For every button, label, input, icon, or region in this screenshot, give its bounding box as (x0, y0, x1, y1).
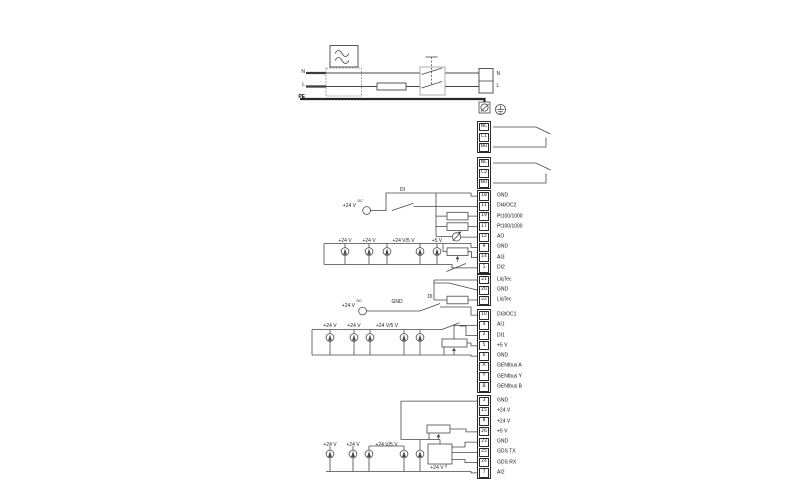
terminal-number: 2 (479, 331, 489, 340)
liqtec-circuit (434, 280, 477, 304)
di3-24v-label: +24 V (329, 304, 355, 310)
terminal-label: Pt100/1000 (497, 214, 523, 219)
mains-terminal-block (479, 69, 493, 94)
terminal-number: NC (479, 159, 489, 168)
terminal-label: +24 V (497, 409, 510, 414)
potentiometer-icon (442, 339, 467, 347)
terminal-row: AGENIbus A (478, 361, 490, 371)
terminal-label: GENIbus A (497, 364, 522, 369)
terminal-number: 15 (479, 407, 489, 416)
supply-terminal-icon (359, 307, 367, 315)
liqtec-sensor-icon (447, 296, 468, 304)
terminal-number: 5 (479, 341, 489, 350)
terminal-number: 20 (479, 286, 489, 295)
terminal-label: DI1 (497, 333, 505, 338)
potentiometer-icon (427, 425, 450, 433)
terminal-row: 9GND (478, 242, 490, 252)
terminal-label: +5 V (497, 429, 507, 434)
supply-terminal-icon (363, 207, 371, 215)
terminal-number: 7 (479, 468, 489, 477)
wiring-diagram: N L PE N L +24 V DC DI +24 V +24 V +24 V… (0, 0, 800, 492)
ai1-24v5v-label: +24 V/5 V (375, 324, 399, 330)
terminal-row: 24GDS RX (478, 458, 490, 468)
terminal-row: 7AI2 (478, 468, 490, 478)
terminal-row: 26+5 V (478, 427, 490, 437)
terminal-row: 14AI3 (478, 253, 490, 263)
terminal-row: 3GND (478, 396, 490, 406)
terminal-row: 2DI1 (478, 331, 490, 341)
terminal-row: 5+5 V (478, 341, 490, 351)
di4-24v-label: +24 V (330, 204, 356, 210)
terminal-number: 10 (479, 311, 489, 320)
di4-pt100-ao-circuit (363, 193, 477, 241)
terminal-row: 10DI3/OC1 (478, 310, 490, 320)
terminal-number: NC (479, 123, 489, 132)
di4-dc-label: DC (358, 199, 363, 203)
di3-di-label: DI (423, 295, 437, 301)
sensor-source-icons (341, 248, 441, 256)
terminal-label: +24 V (497, 419, 510, 424)
terminal-group-liqtec: 21LiqTec20GND22LiqTec (477, 274, 491, 306)
terminal-label: Pt100/1000 (497, 224, 523, 229)
di3-gnd-label: GND (387, 300, 407, 306)
terminal-number: 4 (479, 321, 489, 330)
terminal-label: DI2 (497, 265, 505, 270)
ai2-gds-circuit (326, 401, 477, 473)
ai3-24v-label-2: +24 V (356, 239, 382, 245)
relay-contact-1 (493, 127, 551, 147)
terminal-number: 26 (479, 427, 489, 436)
terminal-row: 11DI4/OC2 (478, 201, 490, 211)
terminal-label: GND (497, 399, 508, 404)
mains-wiring (300, 46, 506, 115)
pt100-sensor-icon (447, 223, 468, 231)
terminal-number: 8 (479, 417, 489, 426)
di4-di-label: DI (400, 188, 405, 194)
pe-wire (300, 99, 485, 102)
terminal-number: C1 (479, 133, 489, 142)
terminal-label: GENIbus Y (497, 374, 522, 379)
terminal-number: NO (479, 179, 489, 188)
screw-terminal-icon (479, 102, 490, 113)
ai3-24v5v-label: +24 V/5 V (392, 239, 415, 245)
terminal-number: 19 (479, 212, 489, 221)
earth-ground-icon (496, 105, 506, 115)
terminal-row: NO (478, 142, 490, 152)
terminal-label: DI4/OC2 (497, 204, 516, 209)
di3-circuit (359, 304, 477, 316)
terminal-group-io-mid: 10DI3/OC14AI12DI15+5 V6GNDAGENIbus AYGEN… (477, 309, 491, 393)
sensor-source-icons (326, 450, 424, 458)
ai1-24v-label-2: +24 V (341, 324, 367, 330)
ai1-24v-label-1: +24 V (317, 324, 343, 330)
ai2-24v5v-label: +24 V/5 V (375, 443, 399, 449)
terminal-label: GND (497, 354, 508, 359)
terminal-number: 6 (479, 352, 489, 361)
mains-pe-label: PE (292, 95, 305, 101)
ai3-24v-label-1: +24 V (332, 239, 358, 245)
terminal-group-io-lower: 3GND15+24 V8+24 V26+5 V23GND25GDS TX24GD… (477, 395, 491, 479)
terminal-number: NO (479, 143, 489, 152)
ai3-di2-circuit (324, 244, 477, 272)
terminal-row: 4AI1 (478, 320, 490, 330)
ai2-24v-label-2: +24 V (340, 443, 366, 449)
terminal-label: GND (497, 288, 508, 293)
di3-switch-icon (420, 304, 440, 312)
terminal-label: AI1 (497, 323, 505, 328)
terminal-row: 17Pt100/1000 (478, 222, 490, 232)
terminal-row: BGENIbus B (478, 382, 490, 392)
wiper-arrow-icon (456, 256, 460, 259)
terminal-row: NC (478, 122, 490, 132)
terminal-label: GDS RX (497, 460, 516, 465)
mains-n-label: N (294, 70, 305, 76)
terminal-group-relay-2: NCC2NO (477, 157, 491, 189)
terminal-number: 22 (479, 296, 489, 305)
di1-switch-icon (442, 323, 460, 330)
mains-l-label: L (294, 83, 305, 89)
outlet-n-label: N (497, 72, 501, 78)
pt100-sensor-icon (447, 212, 468, 220)
terminal-label: GND (497, 245, 508, 250)
sensor-source-icons (326, 334, 424, 342)
terminal-number: Y (479, 372, 489, 381)
terminal-number: 24 (479, 458, 489, 467)
terminal-row: YGENIbus Y (478, 372, 490, 382)
sine-filter-icon (330, 46, 358, 68)
terminal-number: 12 (479, 233, 489, 242)
terminal-number: 21 (479, 276, 489, 285)
terminal-row: 22LiqTec (478, 295, 490, 305)
ai3-5v-label: +5 V (428, 239, 446, 245)
terminal-group-io-upper: 18GND11DI4/OC219Pt100/100017Pt100/100012… (477, 190, 491, 274)
terminal-number: 18 (479, 192, 489, 201)
outlet-l-label: L (497, 84, 500, 90)
terminal-label: AO (497, 235, 504, 240)
terminal-label: LiqTec (497, 298, 511, 303)
terminal-row: 18GND (478, 191, 490, 201)
terminal-row: 20GND (478, 285, 490, 295)
terminal-row: 8+24 V (478, 417, 490, 427)
terminal-group-relay-1: NCC1NO (477, 121, 491, 153)
terminal-label: AI3 (497, 255, 505, 260)
gds-sensor-icon (428, 444, 452, 464)
terminal-number: 25 (479, 448, 489, 457)
terminal-label: GND (497, 194, 508, 199)
ao-transducer-icon (452, 232, 462, 241)
terminal-number: 9 (479, 243, 489, 252)
terminal-label: DI3/OC1 (497, 313, 516, 318)
terminal-row: 15+24 V (478, 406, 490, 416)
terminal-row: NC (478, 158, 490, 168)
wiper-arrow-icon (437, 434, 441, 438)
terminal-label: GDS TX (497, 450, 516, 455)
supply-unit-box (326, 68, 362, 96)
relay-contact-2 (493, 163, 551, 183)
terminal-row: 19Pt100/1000 (478, 212, 490, 222)
terminal-label: +5 V (497, 343, 507, 348)
terminal-row: 12AO (478, 232, 490, 242)
terminal-row: 21LiqTec (478, 275, 490, 285)
terminal-number: 1 (479, 263, 489, 272)
terminal-number: B (479, 382, 489, 391)
mains-nl-stubs (306, 73, 326, 87)
terminal-number: 3 (479, 397, 489, 406)
terminal-row: C1 (478, 132, 490, 142)
di4-switch-icon (392, 203, 414, 210)
terminal-number: 11 (479, 202, 489, 211)
terminal-number: C2 (479, 169, 489, 178)
potentiometer-icon (447, 248, 468, 256)
mains-thin-wires (326, 73, 479, 87)
terminal-row: C2 (478, 168, 490, 178)
wiring-lines (0, 0, 800, 492)
mains-switch-icon (420, 57, 445, 95)
terminal-label: AI2 (497, 470, 505, 475)
terminal-row: 1DI2 (478, 263, 490, 273)
terminal-label: GND (497, 440, 508, 445)
terminal-row: 6GND (478, 351, 490, 361)
fuse-icon (377, 83, 406, 90)
terminal-number: 14 (479, 253, 489, 262)
terminal-row: 25GDS TX (478, 447, 490, 457)
terminal-number: 23 (479, 438, 489, 447)
terminal-label: LiqTec (497, 278, 511, 283)
wiper-arrow-icon (452, 348, 456, 351)
terminal-row: NO (478, 178, 490, 188)
gds-24v-label: +24 V (424, 466, 450, 472)
terminal-number: 17 (479, 222, 489, 231)
terminal-number: A (479, 362, 489, 371)
terminal-row: 23GND (478, 437, 490, 447)
terminal-label: GENIbus B (497, 384, 522, 389)
di3-dc-label: DC (357, 299, 362, 303)
